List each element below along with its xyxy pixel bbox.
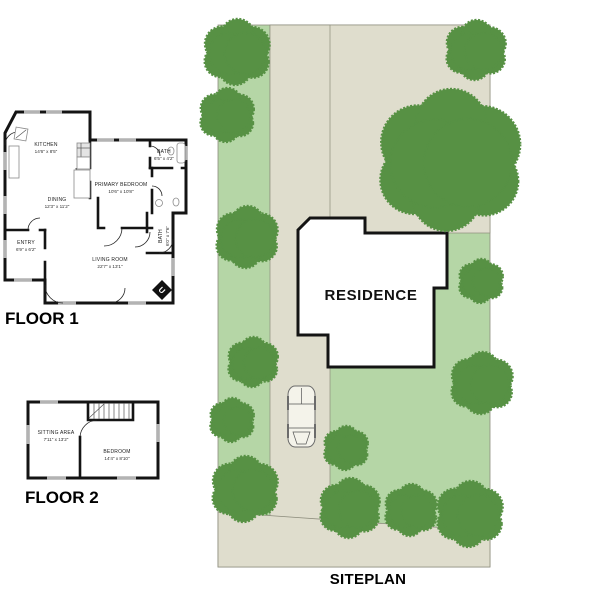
tree: [447, 20, 506, 80]
tree-canopy: [424, 119, 512, 207]
sitting-area-dims: 7'11" x 13'2": [44, 437, 69, 442]
tree: [201, 88, 254, 142]
car-icon: [288, 386, 315, 447]
tree-canopy: [224, 407, 251, 434]
kitchen-label: KITCHEN: [34, 142, 58, 148]
tree: [386, 484, 437, 536]
tree-canopy: [225, 33, 266, 74]
tree-canopy: [338, 435, 365, 462]
tree-canopy: [471, 365, 509, 403]
tree-canopy: [244, 348, 275, 379]
tree: [438, 481, 503, 547]
siteplan: RESIDENCE SITEPLAN: [201, 19, 521, 588]
tree: [459, 259, 502, 303]
primary-bedroom-dims: 10'6" x 10'8": [108, 189, 134, 194]
kitchen-dims: 14'6" x 8'5": [35, 149, 58, 154]
tree-canopy: [236, 219, 274, 257]
tree: [213, 456, 278, 522]
tree: [210, 398, 253, 442]
tree: [380, 89, 520, 231]
tree-canopy: [458, 495, 499, 536]
floor1-outline: [5, 112, 186, 303]
tree: [229, 337, 278, 387]
floor2-plan: SITTING AREA 7'11" x 13'2" BEDROOM 14'4"…: [25, 402, 158, 507]
tree: [321, 478, 380, 538]
dining-label: DINING: [48, 197, 67, 203]
plan-canvas: RESIDENCE SITEPLAN: [0, 0, 600, 600]
bath1-label: BATH: [157, 149, 171, 155]
tree-canopy: [339, 491, 376, 528]
residence-label: RESIDENCE: [325, 287, 418, 304]
dining-dims: 12'3" x 11'2": [45, 204, 70, 209]
floorplan-page: RESIDENCE SITEPLAN: [0, 0, 600, 600]
floor1-plan: U KITCHEN 14'6" x 8'5" DINING 12'3" x 11…: [5, 112, 186, 328]
bedroom-label: BEDROOM: [103, 449, 130, 455]
tree-canopy: [217, 99, 250, 132]
entry-label: ENTRY: [17, 240, 35, 246]
living-room-dims: 22'7" x 13'1": [97, 264, 123, 269]
entry-dims: 6'9" x 6'2": [16, 247, 36, 252]
living-room-label: LIVING ROOM: [92, 257, 128, 263]
tree: [324, 426, 367, 470]
siteplan-title: SITEPLAN: [330, 571, 407, 588]
bath1-dims: 6'5" x 4'2": [154, 156, 174, 161]
sitting-area-label: SITTING AREA: [38, 430, 75, 436]
floor2-title: FLOOR 2: [25, 488, 99, 507]
primary-bedroom-label: PRIMARY BEDROOM: [95, 182, 148, 188]
tree-canopy: [233, 470, 274, 511]
bath2-label: BATH: [158, 229, 164, 243]
tree-canopy: [401, 495, 433, 527]
floor1-title: FLOOR 1: [5, 309, 79, 328]
tree-canopy: [465, 33, 502, 70]
tree-canopy: [473, 268, 500, 295]
tree: [205, 19, 270, 85]
bedroom-dims: 14'4" x 8'10": [104, 456, 130, 461]
tree: [452, 352, 513, 414]
bath2-dims: 6'0" x 7'6": [165, 226, 170, 246]
